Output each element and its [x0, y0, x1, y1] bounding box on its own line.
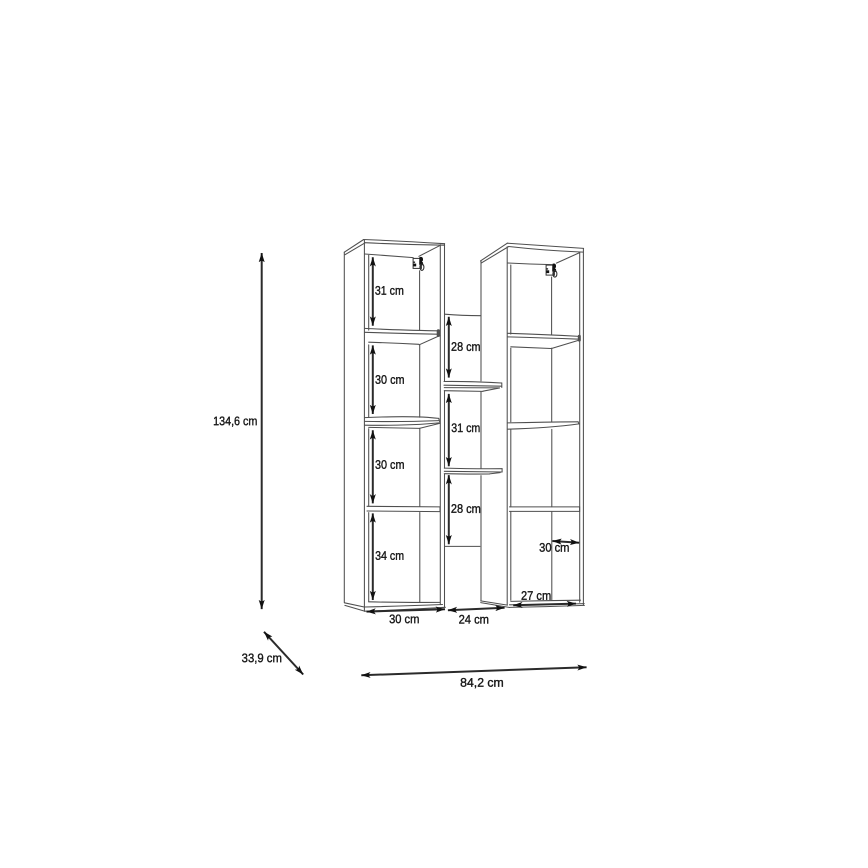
- svg-text:24 cm: 24 cm: [459, 613, 489, 627]
- svg-text:30 cm: 30 cm: [389, 612, 419, 626]
- svg-text:30 cm: 30 cm: [375, 458, 405, 472]
- svg-text:33,9 cm: 33,9 cm: [242, 651, 282, 665]
- svg-text:134,6 cm: 134,6 cm: [213, 414, 257, 428]
- svg-text:31 cm: 31 cm: [451, 421, 480, 435]
- svg-text:28 cm: 28 cm: [451, 502, 481, 516]
- svg-text:27 cm: 27 cm: [521, 589, 551, 603]
- svg-text:28 cm: 28 cm: [451, 340, 481, 354]
- svg-text:84,2 cm: 84,2 cm: [460, 676, 504, 690]
- svg-text:30 cm: 30 cm: [375, 373, 405, 387]
- svg-text:31 cm: 31 cm: [375, 284, 404, 298]
- svg-text:34 cm: 34 cm: [375, 549, 404, 563]
- svg-text:30 cm: 30 cm: [539, 541, 569, 555]
